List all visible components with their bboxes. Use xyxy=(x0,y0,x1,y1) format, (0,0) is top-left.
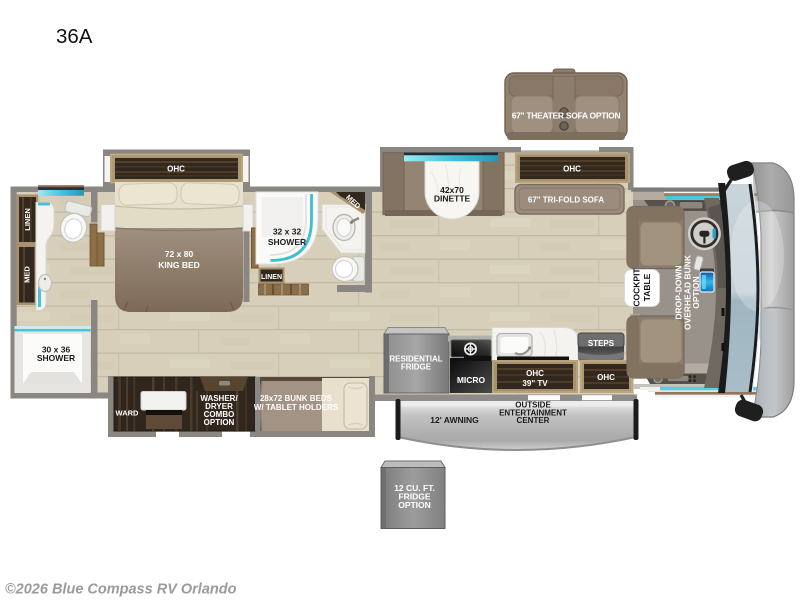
svg-text:©2026 Blue Compass RV Orlando: ©2026 Blue Compass RV Orlando xyxy=(5,582,237,598)
svg-text:67" THEATER SOFA OPTION: 67" THEATER SOFA OPTION xyxy=(512,111,621,121)
svg-text:MED: MED xyxy=(23,266,32,283)
svg-text:KING BED: KING BED xyxy=(158,260,200,270)
svg-text:67" TRI-FOLD SOFA: 67" TRI-FOLD SOFA xyxy=(528,196,604,205)
svg-text:28x72 BUNK BEDS: 28x72 BUNK BEDS xyxy=(260,394,333,403)
svg-text:LINEN: LINEN xyxy=(23,208,32,231)
svg-text:36A: 36A xyxy=(56,25,93,48)
svg-text:TABLE: TABLE xyxy=(642,273,652,301)
svg-text:12' AWNING: 12' AWNING xyxy=(430,415,479,425)
svg-text:SHOWER: SHOWER xyxy=(37,353,75,363)
svg-text:FRIDGE: FRIDGE xyxy=(401,363,432,372)
svg-text:WARD: WARD xyxy=(116,409,139,418)
svg-text:COCKPIT: COCKPIT xyxy=(632,268,642,307)
svg-text:SHOWER: SHOWER xyxy=(268,237,306,247)
svg-text:OPTION: OPTION xyxy=(398,500,431,510)
svg-text:OHC: OHC xyxy=(167,165,185,174)
svg-text:OHC: OHC xyxy=(597,373,615,382)
svg-text:32 x 32: 32 x 32 xyxy=(273,227,302,237)
svg-text:OHC: OHC xyxy=(563,165,581,174)
svg-text:OPTION: OPTION xyxy=(691,276,701,309)
svg-text:39" TV: 39" TV xyxy=(522,379,548,388)
svg-text:W/ TABLET HOLDERS: W/ TABLET HOLDERS xyxy=(254,403,339,412)
svg-text:STEPS: STEPS xyxy=(588,339,615,348)
svg-text:OPTION: OPTION xyxy=(204,418,235,427)
svg-text:72 x 80: 72 x 80 xyxy=(165,249,194,259)
svg-text:OHC: OHC xyxy=(526,369,544,378)
svg-text:MICRO: MICRO xyxy=(457,375,486,385)
svg-text:DINETTE: DINETTE xyxy=(434,194,471,204)
svg-text:LINEN: LINEN xyxy=(261,274,282,281)
svg-text:CENTER: CENTER xyxy=(517,416,550,425)
